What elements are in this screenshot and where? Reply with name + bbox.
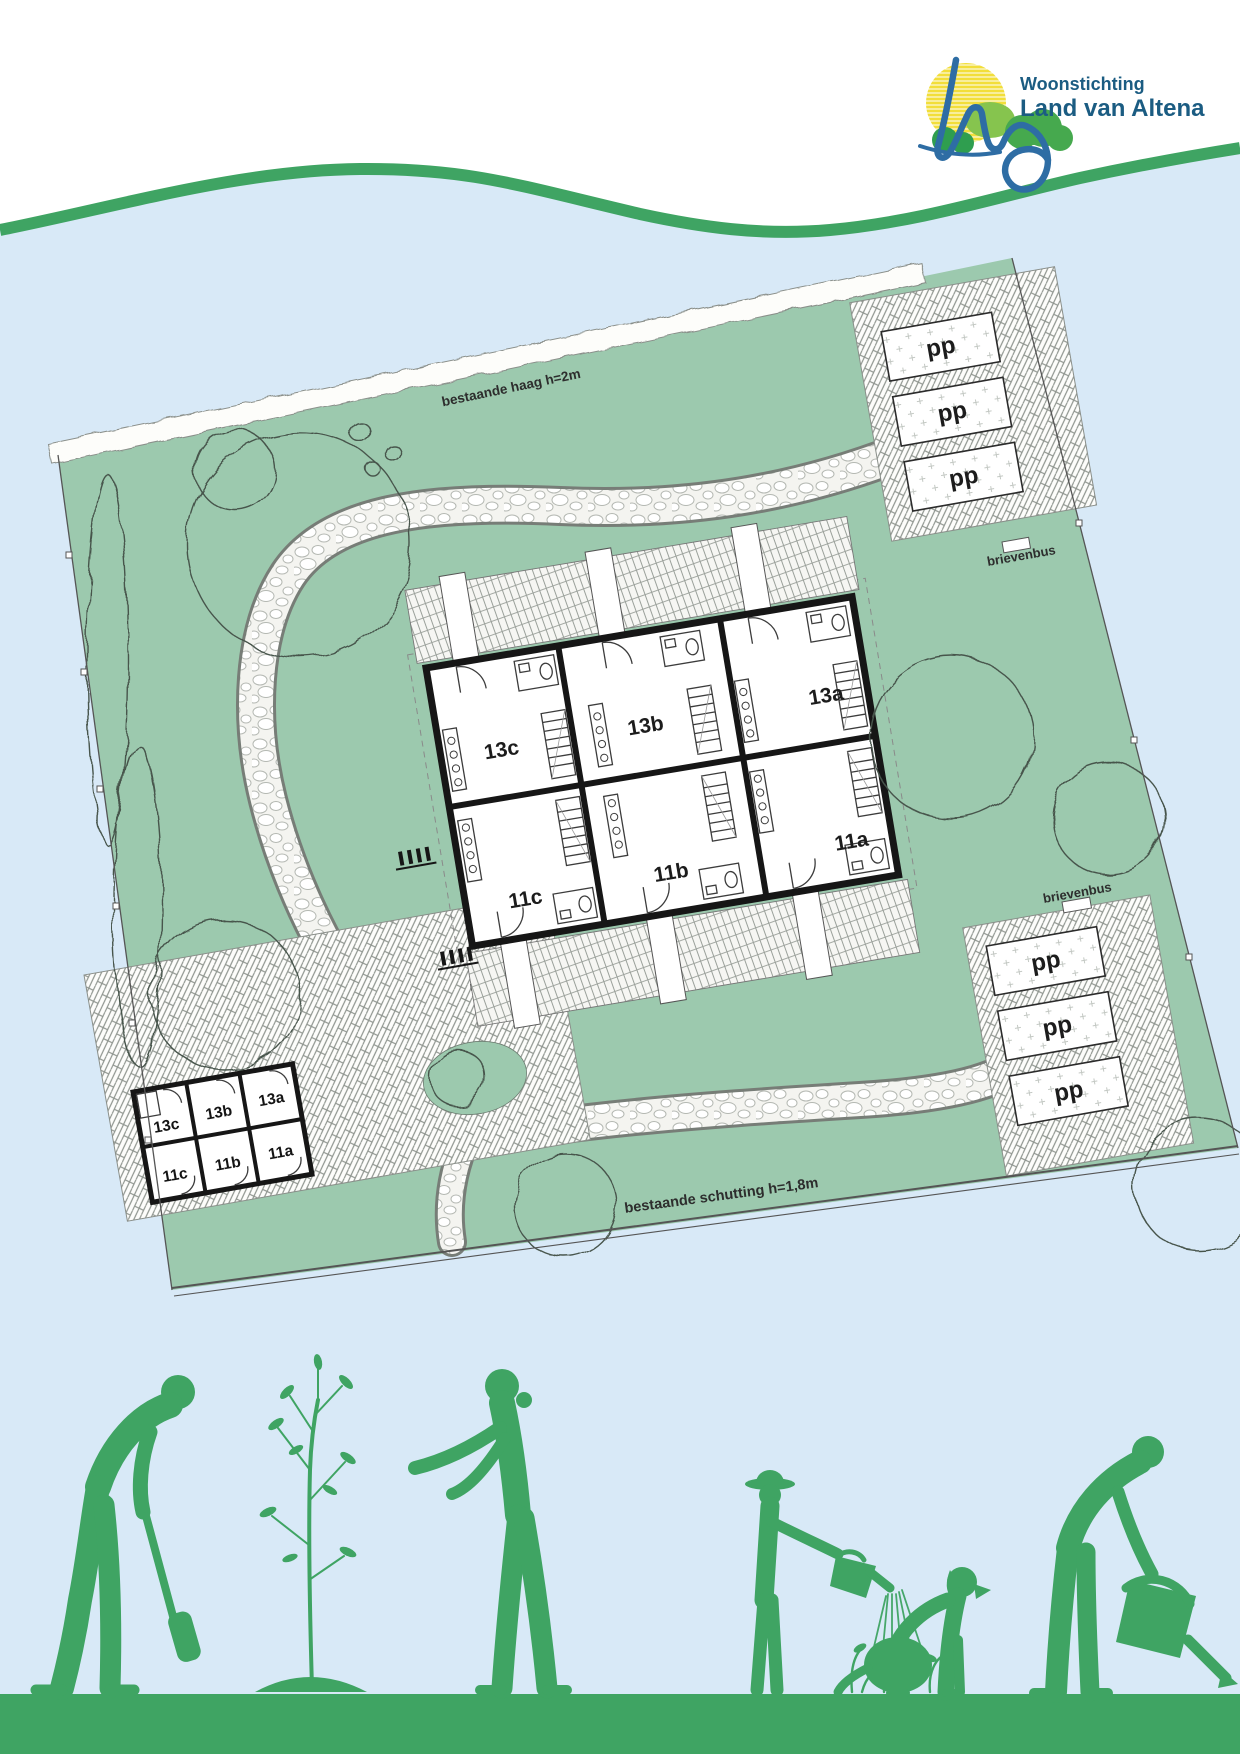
parking-area-top: pp pp pp: [850, 267, 1097, 541]
main-building: 13c 13b 13a 11c 11b 11a: [396, 507, 929, 1035]
logo-text-line1: Woonstichting: [1020, 74, 1145, 94]
parking-spot-label: pp: [1040, 1011, 1074, 1043]
ground-strip: [0, 1694, 1240, 1754]
parking-spot-label: pp: [924, 331, 958, 363]
logo-text-line2: Land van Altena: [1020, 95, 1205, 122]
site-area: pp pp pp brievenbus pp pp pp brievenbus: [48, 258, 1240, 1296]
parking-spot-label: pp: [935, 396, 969, 428]
parking-spot-label: pp: [1029, 946, 1063, 978]
site-plan-page: Woonstichting Land van Altena: [0, 0, 1240, 1754]
parking-spot-label: pp: [947, 461, 981, 493]
parking-spot-label: pp: [1052, 1076, 1086, 1108]
site-plan-drawing: Woonstichting Land van Altena: [0, 0, 1240, 1754]
